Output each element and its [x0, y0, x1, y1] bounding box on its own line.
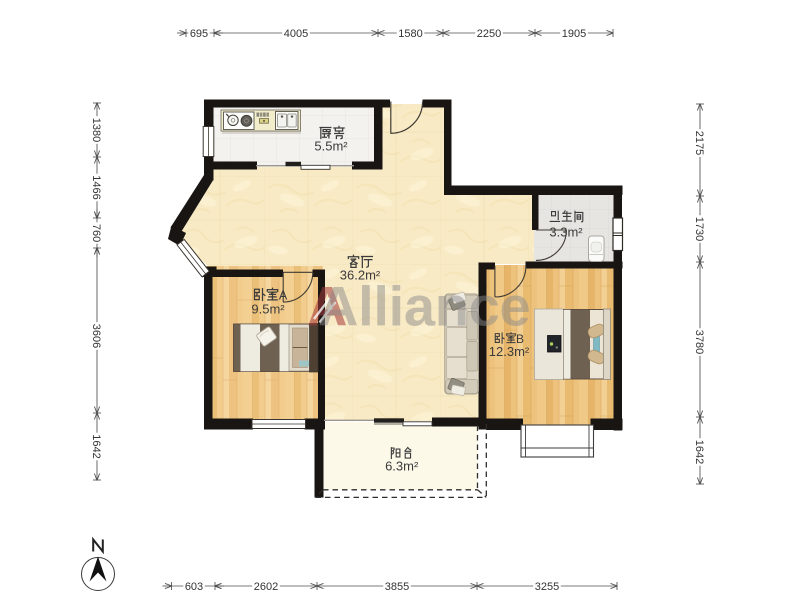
svg-text:3780: 3780	[693, 330, 705, 354]
svg-text:9.5m²: 9.5m²	[251, 302, 285, 317]
svg-text:5.5m²: 5.5m²	[314, 139, 348, 154]
svg-text:1580: 1580	[398, 28, 422, 40]
svg-text:1642: 1642	[90, 434, 102, 458]
svg-text:2250: 2250	[477, 28, 501, 40]
svg-text:1730: 1730	[693, 217, 705, 241]
svg-text:3606: 3606	[90, 324, 102, 348]
svg-text:3855: 3855	[385, 581, 409, 593]
svg-text:12.3m²: 12.3m²	[489, 344, 530, 359]
svg-text:3.3m²: 3.3m²	[549, 225, 583, 240]
svg-text:1380: 1380	[90, 118, 102, 142]
svg-text:1905: 1905	[562, 28, 586, 40]
svg-text:603: 603	[185, 581, 203, 593]
svg-text:2175: 2175	[693, 131, 705, 155]
svg-text:3255: 3255	[535, 581, 559, 593]
svg-text:760: 760	[90, 224, 102, 242]
svg-text:A: A	[279, 289, 288, 303]
svg-text:695: 695	[190, 28, 208, 40]
svg-text:1642: 1642	[693, 440, 705, 464]
svg-text:2602: 2602	[254, 581, 278, 593]
svg-text:6.3m²: 6.3m²	[385, 459, 419, 474]
svg-text:4005: 4005	[284, 28, 308, 40]
svg-text:1466: 1466	[90, 175, 102, 199]
svg-text:Alliance: Alliance	[318, 275, 530, 338]
